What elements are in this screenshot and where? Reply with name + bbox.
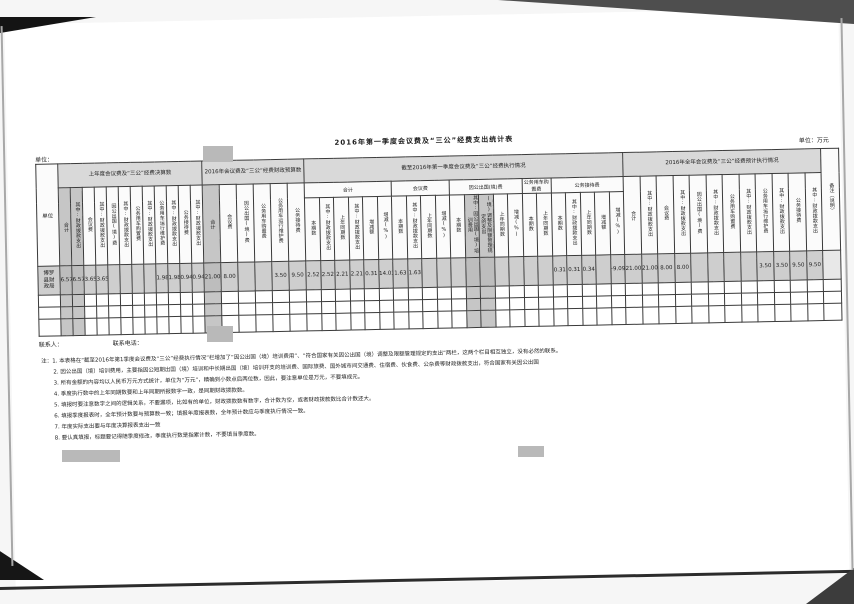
empty-cell xyxy=(145,317,157,334)
empty-cell xyxy=(256,315,273,332)
empty-cell xyxy=(659,295,676,307)
empty-cell xyxy=(336,313,351,330)
col-header-text: 其中:财政拨款支出 xyxy=(353,203,360,249)
empty-cell xyxy=(480,286,495,298)
col-header-text: 增减(%) xyxy=(440,211,446,239)
data-cell-3-7: 1.63 xyxy=(393,259,408,288)
empty-cell xyxy=(824,291,842,303)
data-cell-4-9: 3.50 xyxy=(757,252,774,281)
data-cell-4-7 xyxy=(724,252,741,281)
empty-cell xyxy=(365,312,380,329)
empty-cell xyxy=(307,314,322,331)
col-header-text: 其中:财政拨款支出 xyxy=(777,187,784,233)
col-header-3-4: 其中:财政拨款支出 xyxy=(348,197,364,260)
subgroup-header-3-3: 因公出国(境)费 xyxy=(449,179,522,195)
col-header-4-8: 其中:财政拨款支出 xyxy=(739,174,757,252)
data-cell-3-4: 2.21 xyxy=(349,260,364,289)
empty-cell xyxy=(350,313,365,330)
empty-cell xyxy=(321,301,336,313)
col-header-3-13: 符合国家有关因公出国(境)调整及限额管理规定的支出 xyxy=(479,194,495,257)
empty-cell xyxy=(708,282,725,294)
col-header-3-16: 本期数 xyxy=(522,193,538,256)
empty-cell xyxy=(239,303,256,315)
empty-cell xyxy=(451,287,466,299)
empty-cell xyxy=(658,283,675,295)
empty-cell xyxy=(120,293,132,305)
col-header-4-4: 其中:财政拨款支出 xyxy=(673,175,691,253)
empty-cell xyxy=(495,286,510,298)
empty-cell xyxy=(379,300,394,312)
data-cell-1-4: 3.65 xyxy=(96,265,109,294)
col-header-text: 公务接待费 xyxy=(293,208,299,233)
col-header-4-1: 合计 xyxy=(623,176,641,254)
data-cell-3-14 xyxy=(494,257,509,286)
empty-cell xyxy=(156,293,168,305)
empty-cell xyxy=(452,311,467,328)
data-cell-1-6 xyxy=(120,264,133,293)
subgroup-header-3-4: 公务用车购置费 xyxy=(522,178,551,194)
empty-cell xyxy=(724,281,741,293)
empty-cell xyxy=(181,316,193,333)
subgroup-header-3-1: 合计 xyxy=(304,181,391,198)
data-cell-3-18: 0.31 xyxy=(552,256,567,285)
empty-cell xyxy=(524,297,539,309)
data-cell-4-5 xyxy=(691,253,708,282)
col-header-3-3: 上年同期数 xyxy=(334,197,350,260)
data-cell-3-20: 0.34 xyxy=(581,255,596,284)
scan-artifact xyxy=(518,446,544,457)
empty-cell xyxy=(272,290,289,302)
col-header-text: 公务用车购置费 xyxy=(134,206,140,241)
empty-cell xyxy=(157,317,169,334)
empty-cell xyxy=(256,303,273,315)
empty-cell xyxy=(452,299,467,311)
empty-cell xyxy=(204,292,221,304)
col-header-3-14: 上年同期数 xyxy=(493,194,509,257)
data-cell-4-10: 3.50 xyxy=(773,251,790,280)
col-header-text: 本期数 xyxy=(454,217,460,232)
data-cell-2-5: 3.50 xyxy=(272,261,290,290)
empty-cell xyxy=(61,319,73,336)
empty-cell xyxy=(379,312,394,329)
empty-cell xyxy=(437,299,452,311)
empty-cell xyxy=(774,304,791,321)
empty-cell xyxy=(132,293,144,305)
empty-cell xyxy=(495,310,510,327)
data-cell-2-4 xyxy=(255,262,273,291)
unit-label: 单位： xyxy=(35,154,53,163)
empty-cell xyxy=(60,295,72,307)
empty-cell xyxy=(180,292,192,304)
empty-cell xyxy=(193,304,205,316)
col-header-text: 本期数 xyxy=(396,218,402,233)
empty-cell xyxy=(61,307,73,319)
empty-cell xyxy=(255,291,272,303)
empty-cell xyxy=(379,288,394,300)
col-header-text: 其中:财政拨款支出 xyxy=(645,190,652,236)
empty-cell xyxy=(437,311,452,328)
col-header-4-11: 公务接待费 xyxy=(788,173,806,251)
col-header-text: 其中:财政拨款支出 xyxy=(122,200,129,246)
data-cell-3-1: 2.52 xyxy=(306,261,321,290)
empty-cell xyxy=(169,316,181,333)
col-header-text: 增减额 xyxy=(367,219,373,234)
empty-cell xyxy=(659,307,676,324)
empty-cell xyxy=(774,280,791,292)
col-header-text: 增减(%) xyxy=(512,209,518,237)
empty-cell xyxy=(510,298,525,310)
empty-cell xyxy=(108,294,120,306)
empty-cell xyxy=(625,283,642,295)
data-cell-3-12 xyxy=(465,257,480,286)
data-cell-4-2: 21.00 xyxy=(641,254,658,283)
empty-cell xyxy=(626,307,643,324)
empty-cell xyxy=(85,318,97,335)
col-header-4-12: 其中:财政拨款支出 xyxy=(805,173,823,251)
empty-cell xyxy=(85,306,97,318)
col-header-text: 因公出国(境)费 xyxy=(110,203,117,245)
empty-cell xyxy=(597,296,612,308)
empty-cell xyxy=(423,299,438,311)
data-cell-1-12: 0.94 xyxy=(192,263,205,292)
group-header-1: 上年度会议费及“三公”经费决算数 xyxy=(58,161,203,188)
col-header-3-12: 其中:因公出国(境)培训费用 xyxy=(464,194,480,257)
data-cell-1-1: 6.57 xyxy=(60,266,73,295)
col-header-2-1: 合计 xyxy=(202,185,221,263)
empty-cell xyxy=(222,303,239,315)
empty-cell xyxy=(481,298,496,310)
empty-cell xyxy=(510,310,525,327)
empty-cell xyxy=(466,298,481,310)
col-header-text: 会议费 xyxy=(225,214,231,229)
empty-cell xyxy=(364,288,379,300)
col-header-3-20: 上年同期数 xyxy=(580,192,596,255)
data-cell-1-3: 3.65 xyxy=(84,265,97,294)
data-cell-3-13 xyxy=(480,257,495,286)
empty-cell xyxy=(169,304,181,316)
data-cell-3-17 xyxy=(538,256,553,285)
data-cell-2-3 xyxy=(238,262,256,291)
empty-cell xyxy=(538,285,553,297)
empty-cell xyxy=(408,312,423,329)
empty-cell xyxy=(365,300,380,312)
empty-cell xyxy=(611,284,626,296)
col-header-4-9: 公务用车运行维护费 xyxy=(755,174,773,252)
col-header-2-4: 公务用车购置费 xyxy=(253,184,272,262)
data-cell-1-2: 6.57 xyxy=(72,265,85,294)
empty-cell xyxy=(642,295,659,307)
group-header-2: 2016年会议费及“三公”经费财政预算数 xyxy=(202,159,304,185)
empty-cell xyxy=(273,314,290,331)
empty-cell xyxy=(597,308,612,325)
data-cell-4-8 xyxy=(740,252,757,281)
empty-cell xyxy=(422,287,437,299)
notes-section: 注：1. 本表格在“截至2016年第1季度会议费及“三公”经费执行情况”栏增加了… xyxy=(41,342,843,446)
col-header-text: 本期数 xyxy=(556,215,562,230)
empty-cell xyxy=(321,289,336,301)
empty-cell xyxy=(238,291,255,303)
empty-cell xyxy=(509,286,524,298)
remark-column-header-text: 备注（说明） xyxy=(828,182,834,212)
data-cell-3-10 xyxy=(436,258,451,287)
data-cell-3-15 xyxy=(509,257,524,286)
col-header-text: 合计 xyxy=(62,222,68,232)
col-header-text: 合计 xyxy=(209,219,215,229)
data-cell-1-11: 0.94 xyxy=(180,263,193,292)
col-header-text: 其中:财政拨款支出 xyxy=(570,199,577,245)
empty-cell xyxy=(725,293,742,305)
empty-cell xyxy=(335,289,350,301)
data-cell-4-3: 8.00 xyxy=(658,254,675,283)
empty-cell xyxy=(290,302,307,314)
empty-cell xyxy=(642,307,659,324)
col-header-text: 公务用车购置费 xyxy=(728,194,734,229)
empty-cell xyxy=(466,310,481,327)
empty-cell xyxy=(823,279,841,291)
empty-cell xyxy=(144,293,156,305)
col-header-text: 因公出国(境)费 xyxy=(695,191,702,233)
empty-cell xyxy=(336,301,351,313)
data-cell-4-4: 8.00 xyxy=(674,253,691,282)
empty-cell xyxy=(408,300,423,312)
empty-cell xyxy=(290,314,307,331)
empty-cell xyxy=(539,297,554,309)
empty-cell xyxy=(582,296,597,308)
col-header-text: 上年同期数 xyxy=(585,209,591,234)
empty-cell xyxy=(807,280,824,292)
col-header-text: 其中:财政拨款支出 xyxy=(711,189,718,235)
empty-cell xyxy=(133,305,145,317)
empty-cell xyxy=(582,308,597,325)
col-header-text: 其中:财政拨款支出 xyxy=(74,201,81,247)
empty-cell xyxy=(121,317,133,334)
col-header-2-5: 公务用车运行维护费 xyxy=(270,183,289,261)
data-cell-1-8 xyxy=(144,264,157,293)
contact-person-label: 联系人： xyxy=(39,341,63,348)
col-header-text: 本期数 xyxy=(527,215,533,230)
data-cell-3-3: 2.21 xyxy=(335,260,350,289)
col-header-text: 其中:财政拨款支出 xyxy=(744,188,751,234)
col-header-3-7: 本期数 xyxy=(392,196,408,259)
empty-cell xyxy=(524,285,539,297)
empty-cell xyxy=(466,286,481,298)
empty-cell xyxy=(306,290,321,302)
empty-cell xyxy=(97,318,109,335)
empty-cell xyxy=(691,282,708,294)
empty-cell xyxy=(741,281,758,293)
empty-cell xyxy=(133,317,145,334)
col-header-3-2: 其中:财政拨款支出 xyxy=(319,197,335,260)
empty-cell xyxy=(437,287,452,299)
col-header-3-8: 其中:财政拨款支出 xyxy=(406,196,422,259)
empty-cell xyxy=(273,302,290,314)
empty-cell xyxy=(675,294,692,306)
data-cell-3-21 xyxy=(596,255,611,284)
data-cell-3-2: 2.52 xyxy=(320,260,335,289)
empty-cell xyxy=(38,295,60,307)
col-header-text: 其中:财政拨款支出 xyxy=(678,189,685,235)
empty-cell xyxy=(626,295,643,307)
col-header-text: 公务用车运行维护费 xyxy=(158,200,165,245)
empty-cell xyxy=(758,305,775,322)
empty-cell xyxy=(239,315,256,332)
col-header-text: 其中:财政拨款支出 xyxy=(146,200,153,246)
empty-cell xyxy=(774,292,791,304)
empty-cell xyxy=(807,304,824,321)
col-header-3-17: 上年同期数 xyxy=(536,193,552,256)
empty-cell xyxy=(193,316,205,333)
empty-cell xyxy=(350,301,365,313)
col-header-3-9: 上年同期数 xyxy=(421,195,437,258)
col-header-text: 其中:财政拨款支出 xyxy=(98,201,105,247)
empty-cell xyxy=(109,318,121,335)
data-cell-4-12: 9.50 xyxy=(806,251,823,280)
col-header-text: 公务用车购置费 xyxy=(259,203,265,238)
empty-cell xyxy=(73,318,85,335)
empty-cell xyxy=(168,292,180,304)
col-header-text: 本期数 xyxy=(309,220,315,235)
data-cell-1-10: 1.98 xyxy=(168,263,181,292)
col-header-4-3: 会议费 xyxy=(656,176,674,254)
col-header-4-5: 因公出国(境)费 xyxy=(689,175,707,253)
data-cell-3-6: 14.03% xyxy=(378,259,393,288)
col-header-3-15: 增减(%) xyxy=(507,194,523,257)
col-header-3-18: 本期数 xyxy=(551,193,567,256)
data-cell-2-2: 8.00 xyxy=(221,262,239,291)
empty-cell xyxy=(321,313,336,330)
col-header-2-6: 公务接待费 xyxy=(287,183,306,261)
col-header-text: 因公出国(境)费 xyxy=(242,200,249,242)
empty-cell xyxy=(221,291,238,303)
empty-cell xyxy=(307,302,322,314)
empty-cell xyxy=(725,305,742,322)
col-header-text: 其中:财政拨款支出 xyxy=(194,199,201,245)
empty-cell xyxy=(568,308,583,325)
data-cell-3-11 xyxy=(451,258,466,287)
data-cell-3-9 xyxy=(422,258,437,287)
empty-cell xyxy=(757,281,774,293)
data-cell-3-8: 1.63 xyxy=(407,259,422,288)
empty-cell xyxy=(408,288,423,300)
scan-artifact xyxy=(207,326,233,342)
col-header-text: 增减(%) xyxy=(382,212,388,240)
empty-cell xyxy=(539,309,554,326)
unit-of-measure-label: 单位：万元 xyxy=(799,135,829,145)
empty-cell xyxy=(394,312,409,329)
empty-cell xyxy=(289,290,306,302)
col-header-4-7: 公务用车购置费 xyxy=(722,174,740,252)
empty-cell xyxy=(568,296,583,308)
data-cell-3-5: 0.31 xyxy=(364,259,379,288)
col-header-text: 其中:财政拨款支出 xyxy=(170,200,177,246)
col-header-3-19: 其中:财政拨款支出 xyxy=(565,192,581,255)
contact-line: 联系人： 联系电话： xyxy=(39,338,143,349)
col-header-2-2: 会议费 xyxy=(219,184,238,262)
col-header-text: 增减额 xyxy=(599,214,605,229)
data-cell-4-11: 9.50 xyxy=(790,251,807,280)
remark-column-header: 备注（说明） xyxy=(821,148,841,250)
empty-cell xyxy=(524,309,539,326)
empty-cell xyxy=(73,306,85,318)
empty-cell xyxy=(181,304,193,316)
empty-cell xyxy=(611,296,626,308)
empty-cell xyxy=(791,292,808,304)
col-header-text: 公务接待费 xyxy=(182,210,188,235)
col-header-text: 其中:财政拨款支出 xyxy=(411,202,418,248)
col-header-3-21: 增减额 xyxy=(594,192,610,255)
remark-cell xyxy=(823,250,842,279)
empty-cell xyxy=(708,306,725,323)
col-header-3-11: 本期数 xyxy=(450,195,466,258)
col-header-4-10: 其中:财政拨款支出 xyxy=(772,173,790,251)
col-header-4-2: 其中:财政拨款支出 xyxy=(640,176,658,254)
data-cell-2-6: 9.50 xyxy=(289,261,307,290)
data-cell-1-7 xyxy=(132,264,145,293)
col-header-text: 其中:财政拨款支出 xyxy=(810,187,817,233)
scan-artifact xyxy=(62,450,120,462)
data-cell-3-19: 0.31 xyxy=(567,255,582,284)
data-cell-3-22: -9.09% xyxy=(610,255,625,284)
col-header-3-10: 增减(%) xyxy=(435,195,451,258)
empty-cell xyxy=(791,304,808,321)
empty-cell xyxy=(192,292,204,304)
subgroup-header-3-2: 会议费 xyxy=(391,180,449,196)
data-cell-3-16 xyxy=(523,256,538,285)
empty-cell xyxy=(790,280,807,292)
empty-cell xyxy=(741,305,758,322)
col-header-text: 其中:因公出国(境)培训费用 xyxy=(466,195,479,253)
empty-cell xyxy=(692,306,709,323)
scanned-paper: 2016年第一季度会议费及“三公”经费支出统计表 单位： 单位：万元 单位上年度… xyxy=(4,8,849,591)
empty-cell xyxy=(807,292,824,304)
data-cell-4-6 xyxy=(707,253,724,282)
empty-cell xyxy=(675,306,692,323)
col-header-text: 上年同期数 xyxy=(425,212,431,237)
data-cell-1-9: 1.98 xyxy=(156,264,169,293)
empty-cell xyxy=(495,298,510,310)
empty-cell xyxy=(553,285,568,297)
empty-cell xyxy=(553,309,568,326)
col-header-text: 公务用车运行维护费 xyxy=(276,198,283,243)
empty-cell xyxy=(393,288,408,300)
scan-artifact xyxy=(203,146,233,162)
col-header-text: 符合国家有关因公出国(境)调整及限额管理规定的支出 xyxy=(479,195,494,253)
empty-cell xyxy=(611,308,626,325)
empty-cell xyxy=(481,310,496,327)
stats-table: 单位上年度会议费及“三公”经费决算数2016年会议费及“三公”经费财政预算数截至… xyxy=(35,148,842,337)
empty-cell xyxy=(205,304,222,316)
empty-cell xyxy=(350,289,365,301)
col-header-text: 上年同期数 xyxy=(498,211,504,236)
col-header-text: 会议费 xyxy=(662,205,668,220)
col-header-3-6: 增减(%) xyxy=(377,196,393,259)
empty-cell xyxy=(692,294,709,306)
col-header-text: 公务接待费 xyxy=(794,197,800,222)
empty-cell xyxy=(741,293,758,305)
empty-cell xyxy=(423,311,438,328)
empty-cell xyxy=(824,303,842,320)
col-header-text: 会议费 xyxy=(86,217,92,232)
empty-cell xyxy=(97,306,109,318)
empty-cell xyxy=(596,284,611,296)
col-header-3-22: 增减(%) xyxy=(609,192,625,255)
data-cell-1-5 xyxy=(108,265,121,294)
col-header-2-3: 因公出国(境)费 xyxy=(236,184,255,262)
col-header-4-6: 其中:财政拨款支出 xyxy=(706,175,724,253)
empty-cell xyxy=(39,307,61,319)
empty-cell xyxy=(675,282,692,294)
empty-cell xyxy=(157,305,169,317)
